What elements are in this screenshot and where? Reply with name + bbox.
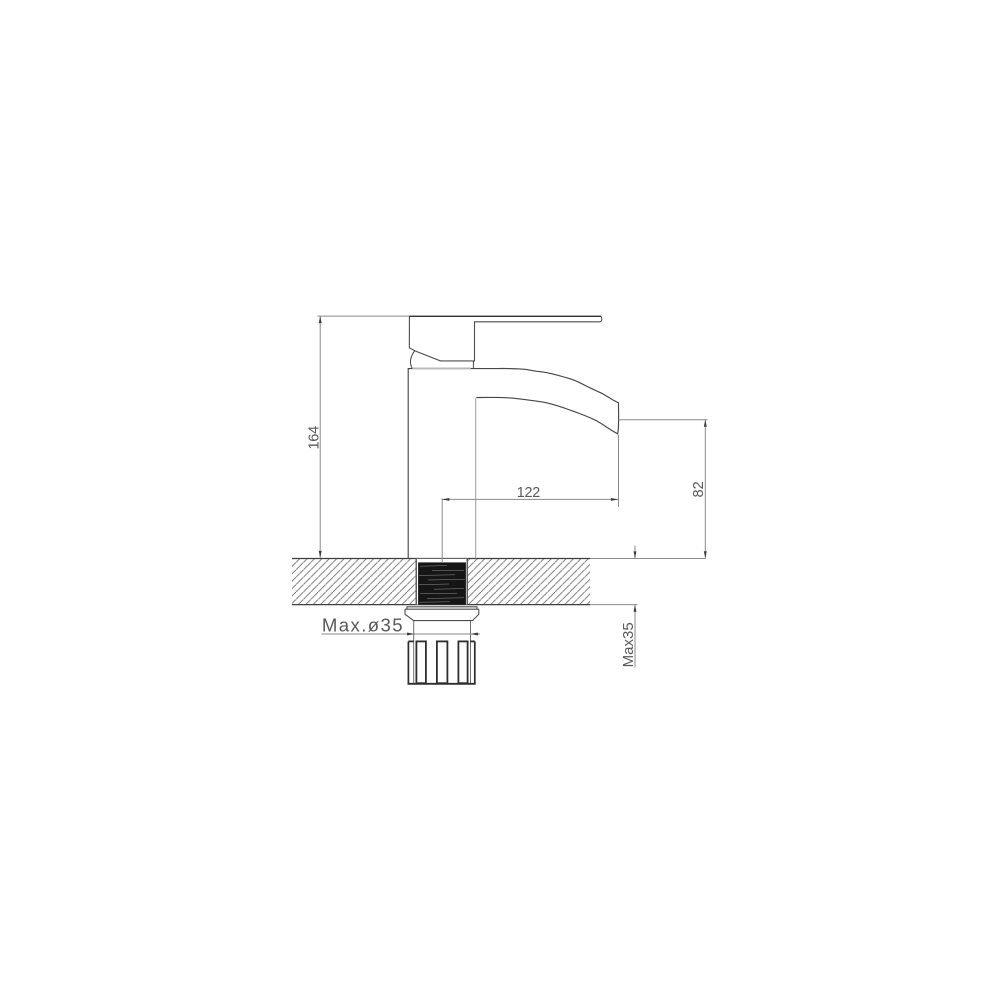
svg-text:122: 122: [517, 485, 541, 501]
svg-text:Max35: Max35: [620, 622, 637, 667]
svg-text:164: 164: [307, 426, 323, 450]
svg-text:82: 82: [691, 481, 707, 497]
svg-text:Max.ø35: Max.ø35: [322, 614, 404, 635]
